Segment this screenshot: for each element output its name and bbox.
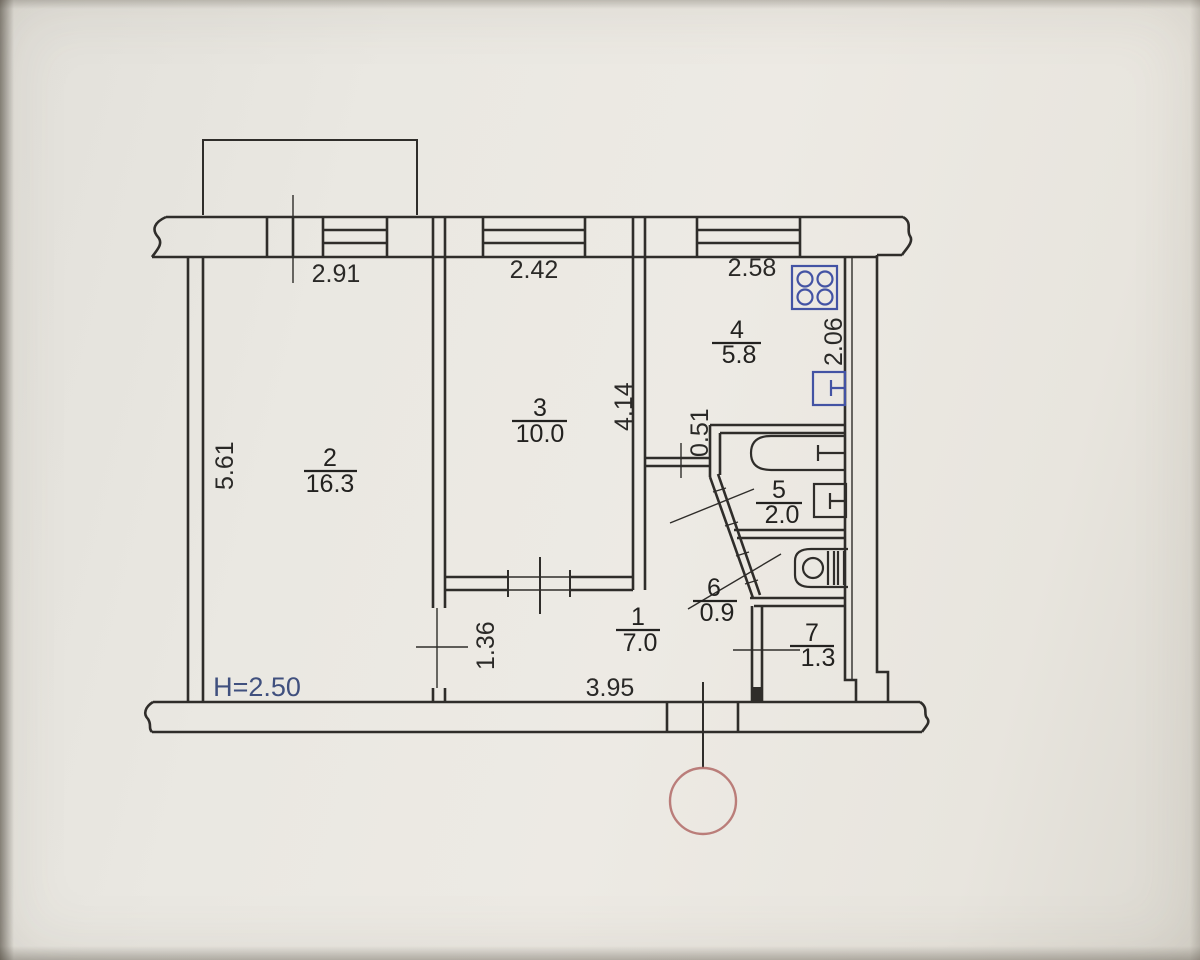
toilet-icon [795, 549, 848, 587]
room-6-number: 6 [707, 574, 721, 602]
wall-break-bottom-right [920, 702, 928, 732]
plan-reference-circle [670, 768, 736, 834]
room-4-number: 4 [730, 316, 744, 344]
dim-room3-window: 2.42 [510, 256, 559, 284]
room-5-number: 5 [772, 476, 786, 504]
dim-room3-depth: 4.14 [610, 382, 638, 431]
room-2-number: 2 [323, 444, 337, 472]
bath-sink-icon [814, 484, 846, 517]
ceiling-height-note: H=2.50 [213, 672, 301, 702]
wall-toilet-closet [750, 598, 845, 606]
room-7-number: 7 [805, 619, 819, 647]
wall-break-top-right [877, 217, 911, 255]
wall-junction-room3-4 [633, 217, 645, 257]
wall-bath-north [710, 425, 845, 433]
room-labels: 2 16.3 3 10.0 4 5.8 5 2.0 6 0.9 7 1.3 [304, 316, 835, 672]
room-1-number: 1 [631, 603, 645, 631]
wall-junction-room2-3 [433, 217, 445, 257]
room-label-6: 6 0.9 [693, 574, 737, 627]
room-label-4: 4 5.8 [712, 316, 761, 369]
room-5-area: 2.0 [765, 501, 800, 529]
window-room3-icon [483, 217, 585, 257]
window-room2-icon [323, 217, 387, 257]
room-label-3: 3 10.0 [512, 394, 567, 448]
balcony-door-jambs [267, 217, 293, 257]
room-4-area: 5.8 [722, 341, 757, 369]
balcony-outline [203, 140, 417, 215]
room-7-area: 1.3 [801, 644, 836, 672]
window-kitchen-icon [697, 217, 800, 257]
dim-room2-door: 1.36 [472, 621, 500, 670]
room3-door-ticks [508, 557, 570, 614]
room-3-number: 3 [533, 394, 547, 422]
dim-niche-offset: 0.51 [686, 408, 714, 457]
dim-hall-width: 3.95 [586, 674, 635, 702]
room-2-area: 16.3 [306, 470, 355, 498]
dim-room2-window: 2.91 [312, 260, 361, 288]
wall-bath-toilet [734, 530, 845, 538]
wall-niche-stub [645, 458, 711, 466]
dim-kitchen-window: 2.58 [728, 254, 777, 282]
dim-room2-depth: 5.61 [211, 441, 239, 490]
wall-break-bottom-left [145, 702, 153, 732]
room-label-1: 1 7.0 [616, 603, 660, 657]
floor-plan-photo: 2.91 2.42 2.58 2.06 4.14 5.61 0.51 1.36 … [0, 0, 1200, 960]
room-6-area: 0.9 [700, 599, 735, 627]
wall-left [188, 257, 203, 702]
dim-kitchen-depth: 2.06 [820, 317, 848, 366]
room-label-2: 2 16.3 [304, 444, 357, 498]
wall-junction-block [752, 687, 762, 701]
stove-icon [792, 266, 837, 309]
room-label-5: 5 2.0 [756, 476, 802, 529]
kitchen-sink-icon [813, 372, 845, 405]
wall-right-outer [877, 255, 888, 702]
wall-room2-east [433, 257, 445, 702]
bathtub-icon [751, 436, 845, 470]
room-label-7: 7 1.3 [790, 619, 835, 672]
wall-break-top-left [152, 217, 166, 257]
room-1-area: 7.0 [623, 629, 658, 657]
entrance-door [667, 682, 738, 834]
room-3-area: 10.0 [516, 420, 565, 448]
floor-plan-drawing: 2.91 2.42 2.58 2.06 4.14 5.61 0.51 1.36 … [0, 0, 1200, 960]
